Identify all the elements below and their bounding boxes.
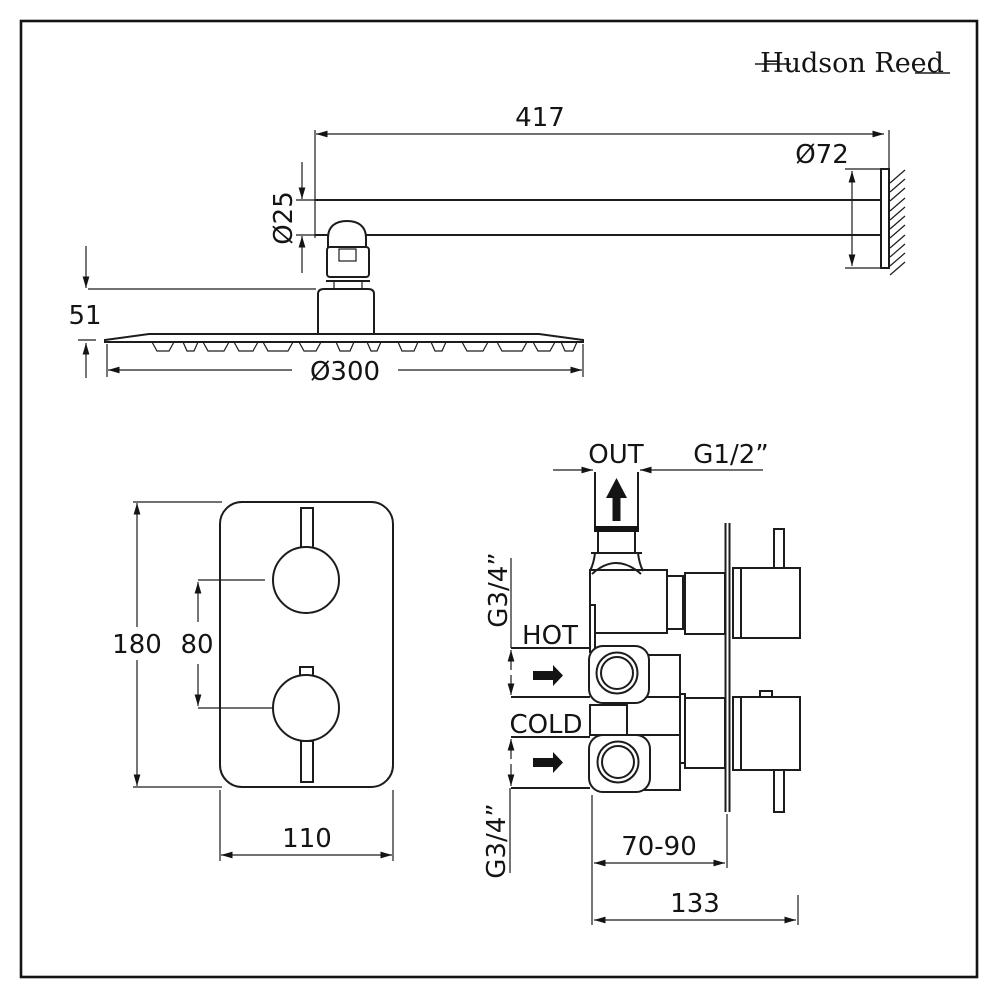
dim-total-depth: 133 <box>594 889 798 925</box>
brand-name: Hudson Reed <box>760 48 944 79</box>
cold-flow-arrow-icon <box>533 752 563 773</box>
dim-arm-diameter-label: Ø25 <box>269 191 299 245</box>
dim-arm-length: 417 <box>315 103 889 238</box>
dim-total-depth-label: 133 <box>670 889 720 919</box>
shower-arm-tube <box>315 200 881 235</box>
bottom-control-knob <box>273 675 339 741</box>
flow-arrow-up-icon <box>606 478 627 521</box>
dim-flange-diameter: Ø72 <box>795 140 881 268</box>
outlet-pipe-seal-band <box>594 526 639 532</box>
valve-front-drawing: 180 80 110 <box>112 502 393 861</box>
mounting-bracket <box>590 605 595 652</box>
shower-head-nozzles <box>152 342 577 351</box>
shower-head-plate <box>105 334 583 342</box>
dim-plate-height-label: 180 <box>112 630 162 660</box>
outlet-label: OUT <box>588 440 643 470</box>
shower-arm-drawing: 417 Ø72 Ø25 51 <box>68 103 905 387</box>
dim-connector-height-label: 51 <box>68 301 101 331</box>
cold-label: COLD <box>509 710 582 740</box>
valve-body <box>589 563 685 792</box>
dim-handle-spacing-label: 80 <box>180 630 213 660</box>
dim-plate-width-label: 110 <box>282 824 332 854</box>
cold-thread-label: G3/4” <box>482 803 512 878</box>
connector-dome <box>328 221 366 249</box>
dim-flange-diameter-label: Ø72 <box>795 140 849 170</box>
valve-side-drawing: OUT G1/2” G3/4” HOT G3/4” COLD 70-90 <box>482 440 800 925</box>
dim-connector-height: 51 <box>68 246 316 378</box>
technical-drawing-page: Hudson Reed <box>0 0 1000 1000</box>
hot-inlet-pipe <box>511 648 590 697</box>
connector-nut <box>327 247 369 277</box>
wall-hatching-icon <box>890 170 905 275</box>
wall-fixing-plate <box>726 523 730 812</box>
drawing-canvas: Hudson Reed <box>0 0 1000 1000</box>
bottom-knob-side <box>685 691 800 812</box>
connector-base <box>318 289 374 336</box>
bottom-handle-stem <box>774 770 784 812</box>
dim-head-diameter-label: Ø300 <box>310 357 380 387</box>
dim-hot-thread: G3/4” HOT <box>484 552 578 695</box>
cold-inlet-pipe <box>511 737 590 788</box>
top-handle-stick <box>301 508 313 548</box>
dim-arm-diameter: Ø25 <box>269 162 315 273</box>
outlet-pipe <box>590 472 643 571</box>
brand-logo: Hudson Reed <box>755 48 950 79</box>
arm-head-connector <box>318 221 374 336</box>
dim-outlet-thread: OUT G1/2” <box>553 440 769 470</box>
top-handle-stem <box>774 529 784 568</box>
wall-flange <box>881 169 889 268</box>
dim-arm-length-label: 417 <box>515 103 565 133</box>
hot-label: HOT <box>522 621 578 651</box>
hot-thread-label: G3/4” <box>484 552 514 627</box>
bottom-handle-stick <box>301 741 313 782</box>
dim-plate-width: 110 <box>220 790 393 861</box>
hot-flow-arrow-icon <box>533 665 563 686</box>
outlet-thread-label: G1/2” <box>693 440 768 470</box>
top-control-knob <box>273 547 339 613</box>
dim-depth-range-label: 70-90 <box>621 832 697 862</box>
top-knob-side <box>685 529 800 638</box>
dim-cold-thread: G3/4” COLD <box>482 710 583 879</box>
